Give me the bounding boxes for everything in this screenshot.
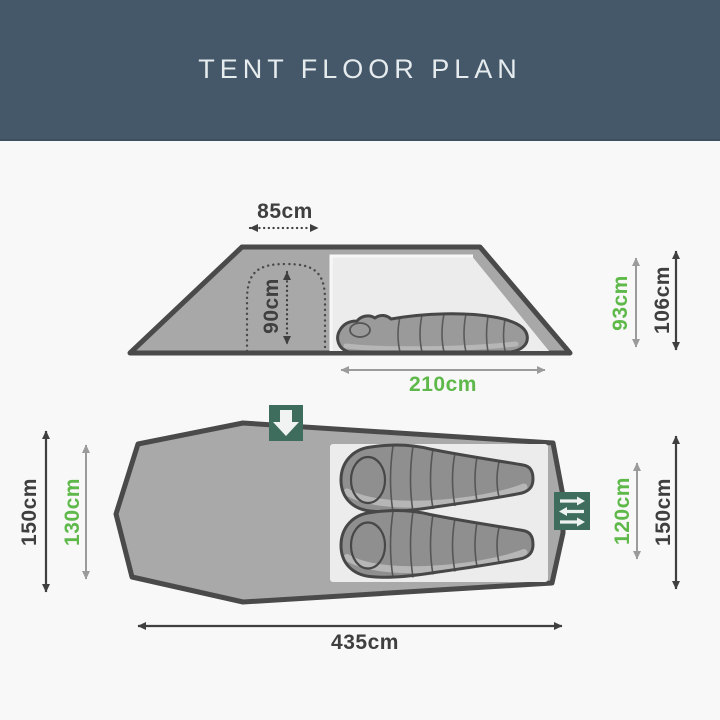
sleeping-bag-side	[338, 314, 528, 352]
vent-marker	[554, 492, 590, 530]
dim-label-outer-height: 106cm	[651, 266, 675, 334]
airflow-arrows-icon	[559, 497, 585, 527]
dim-label-outer-length: 435cm	[331, 631, 399, 655]
door-entrance-marker	[269, 405, 303, 441]
dim-label-door-height: 90cm	[260, 278, 284, 334]
dim-label-inner-width-right: 120cm	[611, 477, 635, 545]
dim-label-outer-width-left: 150cm	[18, 478, 42, 546]
dim-label-inner-width-left: 130cm	[61, 478, 85, 546]
side-view	[130, 228, 676, 370]
dim-label-porch-width: 85cm	[257, 200, 313, 224]
dim-label-outer-width-right: 150cm	[652, 478, 676, 546]
dim-label-sleeping-length: 210cm	[409, 373, 477, 397]
tent-diagrams	[0, 0, 720, 720]
floor-plan	[46, 405, 676, 626]
dim-label-inner-height: 93cm	[609, 275, 633, 331]
tent-floor-plan-infographic: TENT FLOOR PLAN	[0, 0, 720, 720]
